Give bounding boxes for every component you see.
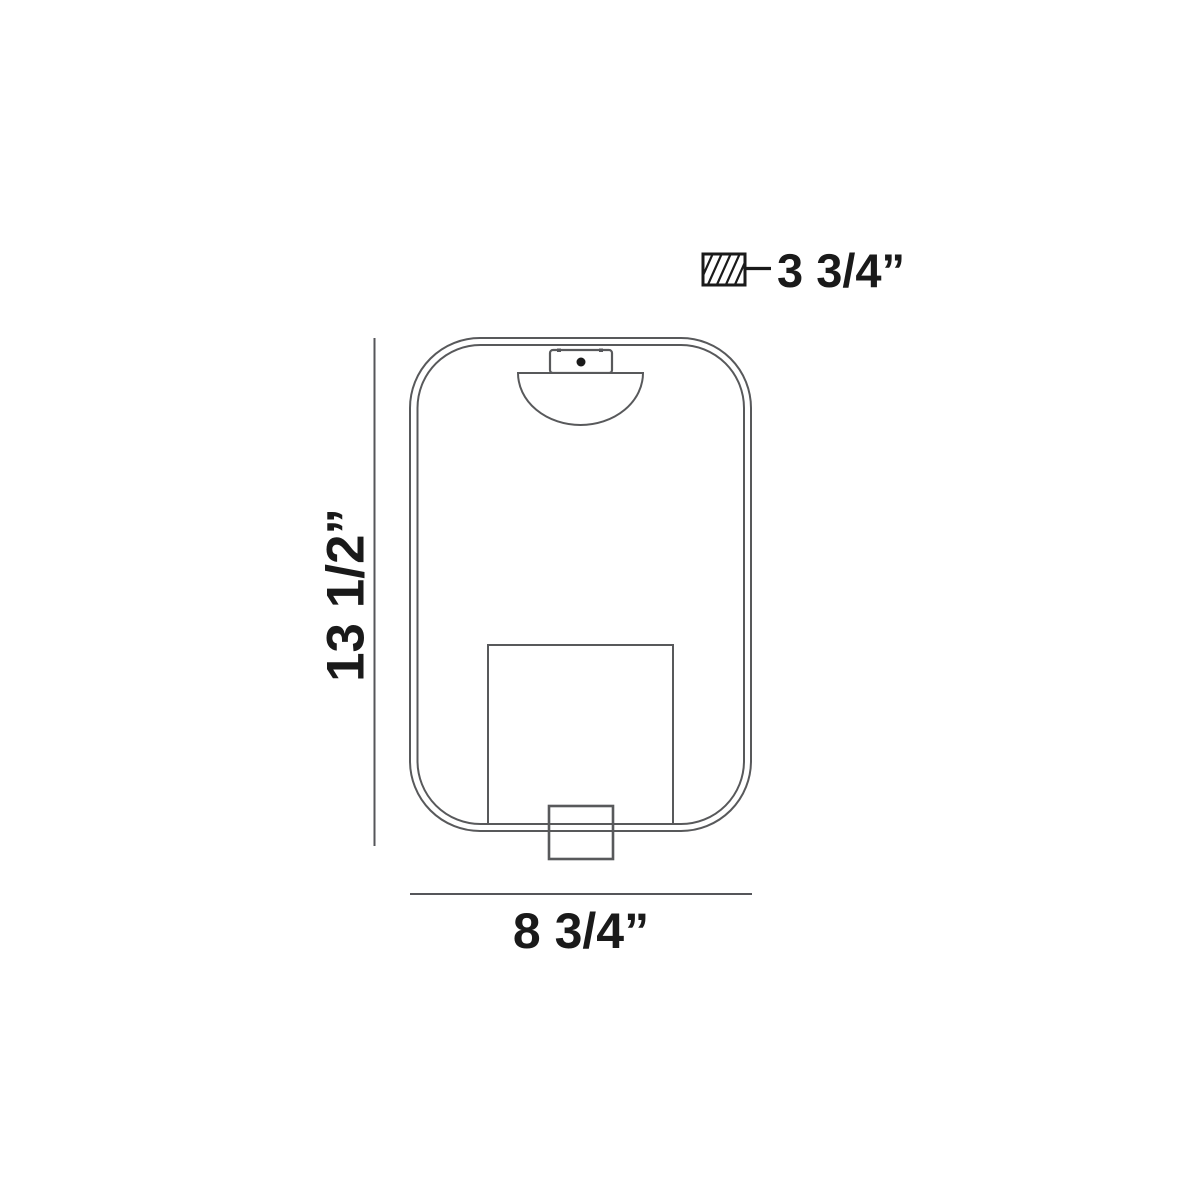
height-dimension-label: 13 1/2” [317, 508, 376, 682]
backplate [488, 645, 673, 824]
canopy-screw-mark-right [599, 349, 603, 353]
sconce-dimension-diagram: 13 1/2” 8 3/4” 3 3/4” [0, 0, 1200, 1200]
depth-section-swatch [697, 251, 771, 289]
canopy-screw-mark-left [557, 349, 561, 353]
depth-dimension-label: 3 3/4” [777, 244, 905, 297]
width-dimension-label: 8 3/4” [513, 903, 649, 959]
fixture-outline [410, 338, 751, 859]
depth-indicator: 3 3/4” [697, 244, 905, 297]
canopy-center-dot [577, 358, 586, 367]
shade-dome [518, 373, 643, 425]
height-dimension: 13 1/2” [317, 338, 376, 846]
width-dimension: 8 3/4” [410, 894, 752, 959]
diagram-canvas: 13 1/2” 8 3/4” 3 3/4” [0, 0, 1200, 1200]
